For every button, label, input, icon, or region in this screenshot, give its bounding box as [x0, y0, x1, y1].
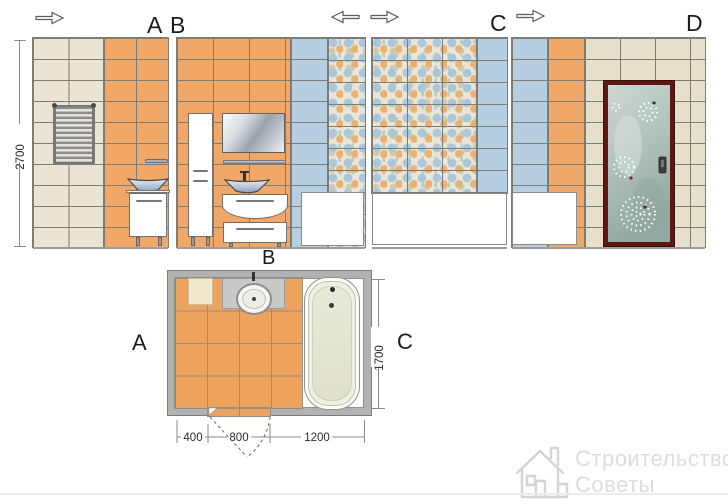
vanity-leg	[136, 237, 140, 246]
arrow-right-icon	[36, 13, 63, 24]
cabinet-leg	[206, 237, 210, 246]
tall-storage-cabinet	[188, 113, 213, 237]
dimension-1700	[372, 279, 385, 409]
tub-faucet-dot	[330, 287, 335, 292]
wall-mirror	[222, 113, 285, 153]
floor-baseline	[372, 247, 507, 249]
elevation-panel-d	[512, 38, 705, 247]
tub-drain-dot	[329, 303, 334, 308]
vanity-cabinet	[129, 193, 167, 237]
plan-door-opening	[208, 408, 270, 416]
towel-bar	[145, 159, 168, 163]
panel-label-a: A	[147, 14, 162, 37]
floor-baseline	[33, 247, 168, 249]
cabinet-handle	[193, 170, 208, 172]
floor-baseline	[512, 247, 705, 249]
bathroom-tiling-scheme: A B C D B A C 2700 400	[0, 0, 728, 504]
bathtub-side-panel	[372, 193, 507, 245]
faucet-spout	[240, 171, 249, 173]
elevation-panel-a	[33, 38, 168, 247]
bathtub-side-panel	[512, 192, 577, 245]
frosted-glass-door-pane	[608, 85, 670, 242]
dimension-800-text: 800	[229, 432, 248, 444]
arrow-right-icon	[371, 12, 398, 23]
vanity-leg	[158, 237, 162, 246]
panel-label-d: D	[686, 12, 703, 35]
plan-label-left: A	[132, 332, 147, 354]
plan-label-top: B	[262, 248, 275, 268]
dimension-1200-text: 1200	[304, 432, 330, 444]
house-icon	[513, 440, 573, 500]
dimension-2700	[14, 40, 26, 247]
plan-bathtub	[304, 277, 360, 410]
bathtub-side-panel	[301, 192, 364, 246]
panel-label-b: B	[170, 14, 185, 37]
elevation-panel-c	[372, 38, 507, 247]
elevation-panel-b	[177, 38, 365, 247]
floor-plan	[167, 270, 372, 416]
glass-shelf	[223, 160, 286, 164]
cabinet-handle	[193, 180, 208, 182]
bottom-divider	[0, 493, 728, 495]
dimension-400-text: 400	[183, 432, 202, 444]
plan-label-right: C	[397, 331, 413, 353]
arrow-right-icon	[517, 11, 544, 22]
dimension-widths	[177, 420, 365, 443]
cabinet-leg	[191, 237, 195, 246]
panel-c-mosaic-tiles	[372, 38, 477, 193]
plan-basin-drain	[252, 297, 256, 301]
arrow-left-icon	[332, 12, 359, 23]
towel-radiator	[53, 105, 95, 164]
bathroom-door	[603, 80, 675, 247]
panel-label-c: C	[490, 12, 507, 35]
door-swing	[210, 417, 270, 457]
plan-basin-faucet	[252, 272, 255, 281]
watermark-title: Строительство	[575, 446, 728, 472]
plan-towel-radiator	[188, 278, 213, 305]
vanity-drawer	[223, 222, 287, 243]
vessel-sink-bowl	[224, 179, 270, 194]
dimension-1700-text: 1700	[374, 345, 386, 371]
door-handle	[659, 157, 666, 173]
dimension-2700-text: 2700	[15, 144, 27, 170]
panel-c-blue-tiles	[477, 38, 507, 193]
